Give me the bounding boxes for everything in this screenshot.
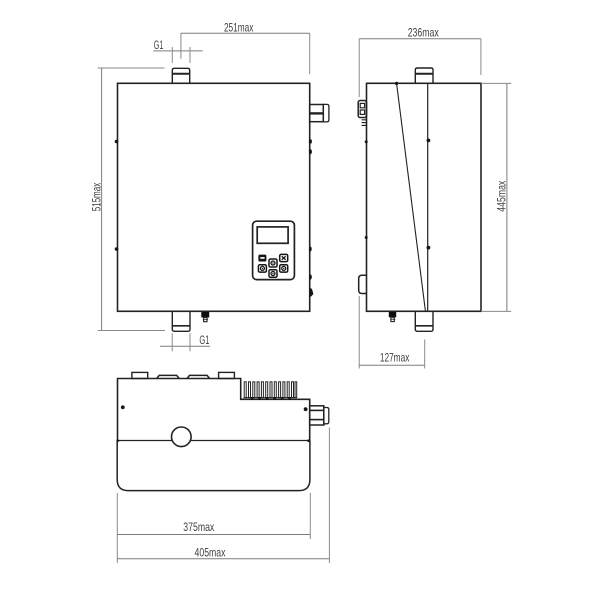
svg-text:G1: G1 bbox=[199, 333, 209, 347]
svg-text:375max: 375max bbox=[183, 520, 214, 534]
svg-text:251max: 251max bbox=[224, 20, 254, 34]
svg-text:G1: G1 bbox=[154, 38, 164, 52]
svg-text:445max: 445max bbox=[495, 181, 509, 212]
svg-text:127max: 127max bbox=[380, 351, 410, 365]
svg-text:405max: 405max bbox=[195, 546, 226, 560]
svg-text:515max: 515max bbox=[90, 183, 104, 212]
svg-text:236max: 236max bbox=[408, 26, 439, 40]
